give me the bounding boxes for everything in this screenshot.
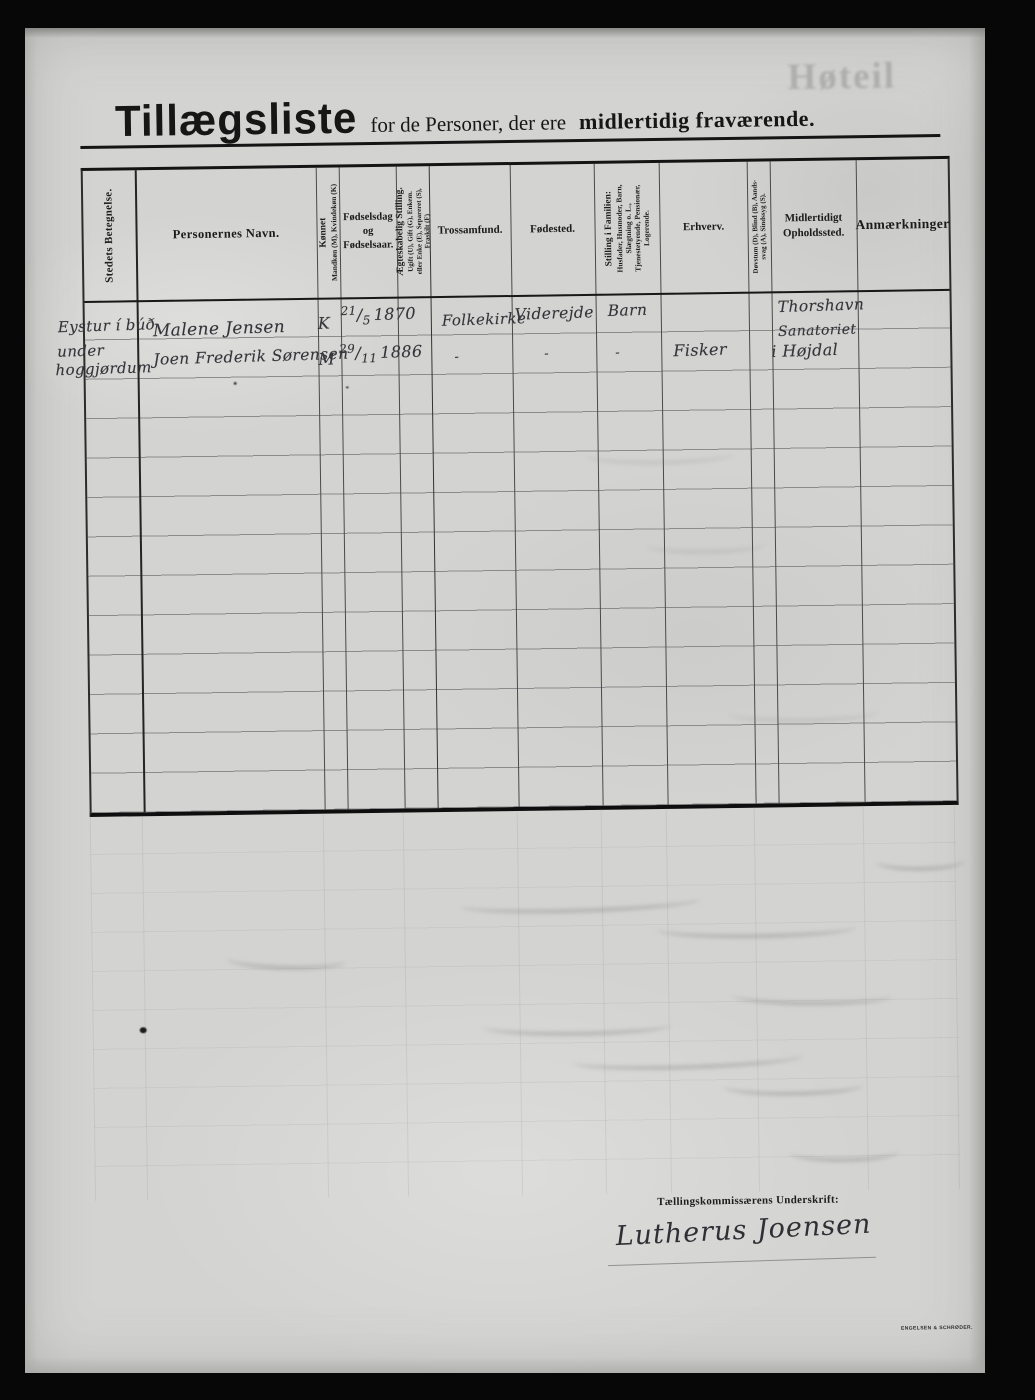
title-subtitle-bold: midlertidig fraværende.	[579, 106, 815, 135]
entry-row2-faith-ditto: -	[454, 350, 459, 365]
entry-row1-birth-day: 21	[340, 304, 357, 318]
entry-row1-sex: K	[318, 313, 331, 332]
signature-label: Tællingskommissærens Underskrift:	[657, 1194, 839, 1209]
entry-row2-birth-month: 11	[361, 351, 378, 365]
entry-row2-birthplace-ditto: -	[544, 346, 549, 361]
entry-row1-family-position: Barn	[607, 301, 647, 320]
ink-speck	[234, 382, 237, 385]
entry-row1-name: Malene Jensen	[153, 317, 286, 341]
column-stilling-i-familien: Stilling i Familien: Husfader, Husmoder,…	[594, 163, 669, 806]
column-personernes-navn: Personernes Navn.	[135, 168, 326, 812]
entry-row2-occupation: Fisker	[673, 340, 727, 361]
entry-row2-place-line1: under	[57, 341, 105, 360]
ink-speck	[140, 1027, 147, 1033]
signature-underline	[608, 1257, 876, 1266]
column-anmaerkninger: Anmærkninger	[856, 159, 957, 802]
header-label-foedselsdag: Fødselsdag og Fødselsaar.	[334, 210, 403, 253]
header-label-stedets-betegnelse: Stedets Betegnelse.	[102, 173, 117, 299]
entry-row2-residence-line2: i Højdal	[771, 340, 838, 361]
title-main: Tillægsliste	[115, 93, 358, 146]
header-label-midlertidigt-opholdssted: Midlertidigt Opholdssted.	[764, 210, 863, 241]
entry-row2-birth-year: 1886	[380, 342, 423, 362]
header-label-personernes-navn: Personernes Navn.	[135, 224, 316, 243]
entry-row1-birthdate: 21/51870	[340, 302, 416, 328]
title-subtitle: for de Personer, der ere	[370, 110, 566, 138]
entry-row2-family-ditto: -	[615, 345, 620, 360]
scanned-sheet: Høteil Tillægsliste for de Personer, der…	[25, 28, 985, 1373]
entry-row2-birthdate: 29/111886	[339, 340, 423, 367]
column-foedested: Fødested.	[510, 164, 604, 807]
ink-speck	[346, 386, 349, 388]
entry-row1-place: Eystur í búð	[58, 315, 156, 336]
entry-row1-residence: Thorshavn	[777, 295, 864, 316]
entry-row2-birth-day: 29	[339, 342, 356, 356]
header-label-anmaerkninger: Anmærkninger	[852, 215, 953, 235]
entry-row1-birthplace: Viderejde	[514, 303, 594, 323]
page-background: { "sheet": { "title": { "main": "Tillægs…	[0, 0, 1035, 1400]
entry-row2-place-line2: hoggjørdum	[55, 358, 152, 379]
entry-row1-birth-month: 5	[363, 313, 371, 327]
sheet-content: Høteil Tillægsliste for de Personer, der…	[19, 15, 998, 1373]
column-trossamfund: Trossamfund.	[429, 165, 520, 808]
printer-imprint: ENGELSEN & SCHRØDER.	[901, 1325, 973, 1332]
signature-handwritten: Lutherus Joensen	[615, 1209, 872, 1252]
entry-row1-birth-year: 1870	[373, 304, 416, 324]
entry-row2-sex: M	[318, 349, 335, 369]
entry-row2-residence-line1: Sanatoriet	[778, 322, 857, 340]
